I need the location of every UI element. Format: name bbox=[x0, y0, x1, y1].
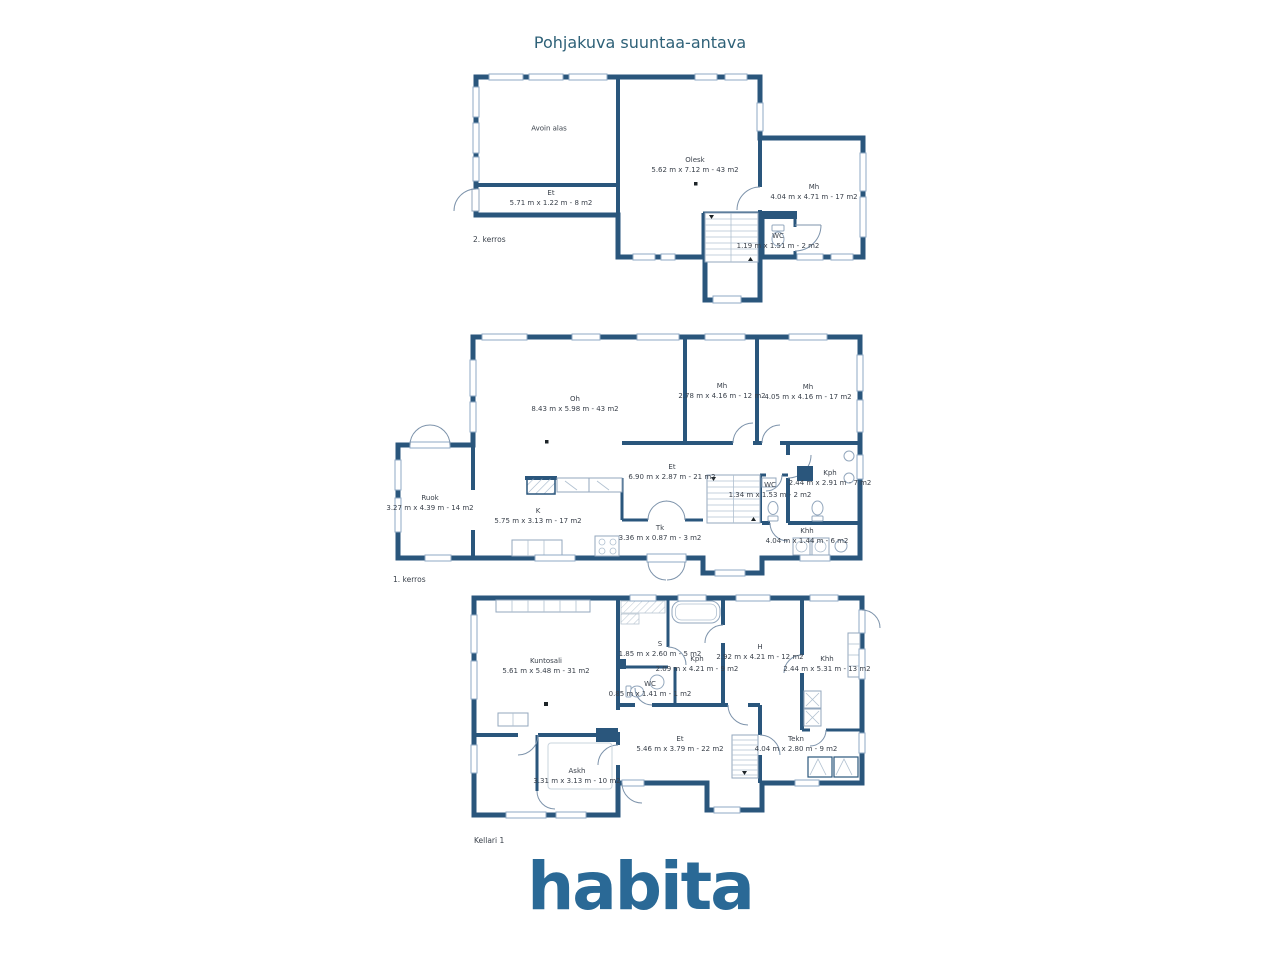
room-dims: 5.75 m x 3.13 m - 17 m2 bbox=[494, 517, 581, 526]
room-dims: 4.04 m x 2.80 m - 9 m2 bbox=[755, 745, 838, 754]
floor-plan-basement: Kuntosali 5.61 m x 5.48 m - 31 m2 S 1.85… bbox=[460, 585, 890, 847]
room-dims: 6.90 m x 2.87 m - 21 m2 bbox=[628, 473, 715, 482]
room-label-et: Et 5.46 m x 3.79 m - 22 m2 bbox=[636, 734, 723, 754]
ceiling-point bbox=[694, 182, 698, 186]
chimney-block bbox=[596, 728, 618, 742]
room-name: Et bbox=[636, 734, 723, 745]
floor-plan-1st-floor: Oh 8.43 m x 5.98 m - 43 m2 Mh 2.78 m x 4… bbox=[385, 330, 875, 595]
room-label-khh: Khh 4.04 m x 1.44 m - 6 m2 bbox=[766, 526, 849, 546]
room-label-tk: Tk 3.36 m x 0.87 m - 3 m2 bbox=[619, 523, 702, 543]
room-name: Olesk bbox=[651, 155, 738, 166]
room-label-mh-2: Mh 4.05 m x 4.16 m - 17 m2 bbox=[764, 382, 851, 402]
room-name: WC bbox=[737, 231, 820, 242]
room-label-et: Et 6.90 m x 2.87 m - 21 m2 bbox=[628, 462, 715, 482]
room-dims: 2.44 m x 5.31 m - 13 m2 bbox=[783, 665, 870, 674]
ceiling-point bbox=[544, 702, 548, 706]
room-dims: 2.09 m x 4.21 m - 9 m2 bbox=[656, 665, 739, 674]
room-name: Tk bbox=[619, 523, 702, 534]
room-label-oh: Oh 8.43 m x 5.98 m - 43 m2 bbox=[531, 394, 618, 414]
floor-label-1-kerros: 1. kerros bbox=[393, 575, 426, 584]
room-name: Khh bbox=[766, 526, 849, 537]
room-name: Oh bbox=[531, 394, 618, 405]
page-title: Pohjakuva suuntaa-antava bbox=[0, 33, 1280, 52]
floor-label-kellari-1: Kellari 1 bbox=[474, 836, 504, 845]
room-label-kph: Kph 2.44 m x 2.91 m - 7 m2 bbox=[789, 468, 872, 488]
room-dims: 2.78 m x 4.16 m - 12 m2 bbox=[678, 392, 765, 401]
room-label-kuntosali: Kuntosali 5.61 m x 5.48 m - 31 m2 bbox=[502, 656, 589, 676]
room-dims: 1.34 m x 1.53 m - 2 m2 bbox=[729, 491, 812, 500]
room-dims: 4.05 m x 4.16 m - 17 m2 bbox=[764, 393, 851, 402]
room-label-olesk: Olesk 5.62 m x 7.12 m - 43 m2 bbox=[651, 155, 738, 175]
door-icon bbox=[667, 562, 685, 580]
door-leaf bbox=[472, 189, 479, 211]
room-label-et: Et 5.71 m x 1.22 m - 8 m2 bbox=[510, 188, 593, 208]
room-label-khh: Khh 2.44 m x 5.31 m - 13 m2 bbox=[783, 654, 870, 674]
room-dims: 5.62 m x 7.12 m - 43 m2 bbox=[651, 166, 738, 175]
room-dims: 4.04 m x 1.44 m - 6 m2 bbox=[766, 537, 849, 546]
room-label-wc: WC 1.19 m x 1.51 m - 2 m2 bbox=[737, 231, 820, 251]
room-label-avoin-alas: Avoin alas bbox=[531, 123, 567, 134]
room-name: WC bbox=[609, 679, 692, 690]
wc-wall-block bbox=[759, 211, 797, 219]
room-dims: 2.44 m x 2.91 m - 7 m2 bbox=[789, 479, 872, 488]
bathtub-icon bbox=[672, 601, 720, 623]
room-name: Mh bbox=[764, 382, 851, 393]
room-label-k: K 5.75 m x 3.13 m - 17 m2 bbox=[494, 506, 581, 526]
room-name: Kuntosali bbox=[502, 656, 589, 667]
room-dims: 8.43 m x 5.98 m - 43 m2 bbox=[531, 405, 618, 414]
room-dims: 5.71 m x 1.22 m - 8 m2 bbox=[510, 199, 593, 208]
habita-logo: habita bbox=[0, 848, 1280, 925]
room-dims: 1.19 m x 1.51 m - 2 m2 bbox=[737, 242, 820, 251]
room-name: Tekn bbox=[755, 734, 838, 745]
floor-label-2-kerros: 2. kerros bbox=[473, 235, 506, 244]
room-name: S bbox=[619, 639, 702, 650]
french-doors bbox=[410, 425, 450, 448]
wall-block bbox=[616, 659, 626, 669]
room-dims: 0.85 m x 1.41 m - 1 m2 bbox=[609, 690, 692, 699]
ceiling-point bbox=[545, 440, 549, 444]
room-name: Et bbox=[510, 188, 593, 199]
room-name: Khh bbox=[783, 654, 870, 665]
room-label-wc: WC 0.85 m x 1.41 m - 1 m2 bbox=[609, 679, 692, 699]
floor-plan-basement-drawing bbox=[460, 585, 890, 847]
room-dims: 3.27 m x 4.39 m - 14 m2 bbox=[386, 504, 473, 513]
room-dims: 5.61 m x 5.48 m - 31 m2 bbox=[502, 667, 589, 676]
room-dims: 3.36 m x 0.87 m - 3 m2 bbox=[619, 534, 702, 543]
room-label-mh: Mh 4.04 m x 4.71 m - 17 m2 bbox=[770, 182, 857, 202]
fireplace-icon bbox=[527, 478, 555, 494]
toilet-icon bbox=[812, 501, 823, 515]
door-icon bbox=[648, 562, 666, 580]
floor-plan-2nd-floor: Avoin alas Olesk 5.62 m x 7.12 m - 43 m2… bbox=[445, 65, 885, 315]
room-label-mh-1: Mh 2.78 m x 4.16 m - 12 m2 bbox=[678, 381, 765, 401]
room-name: Mh bbox=[770, 182, 857, 193]
room-name: Ruok bbox=[386, 493, 473, 504]
room-label-ruok: Ruok 3.27 m x 4.39 m - 14 m2 bbox=[386, 493, 473, 513]
room-name: Askh bbox=[533, 766, 620, 777]
room-name: H bbox=[716, 642, 803, 653]
room-name: Avoin alas bbox=[531, 123, 567, 134]
room-name: Kph bbox=[789, 468, 872, 479]
room-dims: 5.46 m x 3.79 m - 22 m2 bbox=[636, 745, 723, 754]
room-name: Et bbox=[628, 462, 715, 473]
room-dims: 3.31 m x 3.13 m - 10 m2 bbox=[533, 777, 620, 786]
room-name: K bbox=[494, 506, 581, 517]
room-dims: 4.04 m x 4.71 m - 17 m2 bbox=[770, 193, 857, 202]
room-label-tekn: Tekn 4.04 m x 2.80 m - 9 m2 bbox=[755, 734, 838, 754]
sink-icon bbox=[844, 451, 854, 461]
toilet-icon bbox=[768, 502, 778, 515]
room-label-askh: Askh 3.31 m x 3.13 m - 10 m2 bbox=[533, 766, 620, 786]
room-name: Mh bbox=[678, 381, 765, 392]
